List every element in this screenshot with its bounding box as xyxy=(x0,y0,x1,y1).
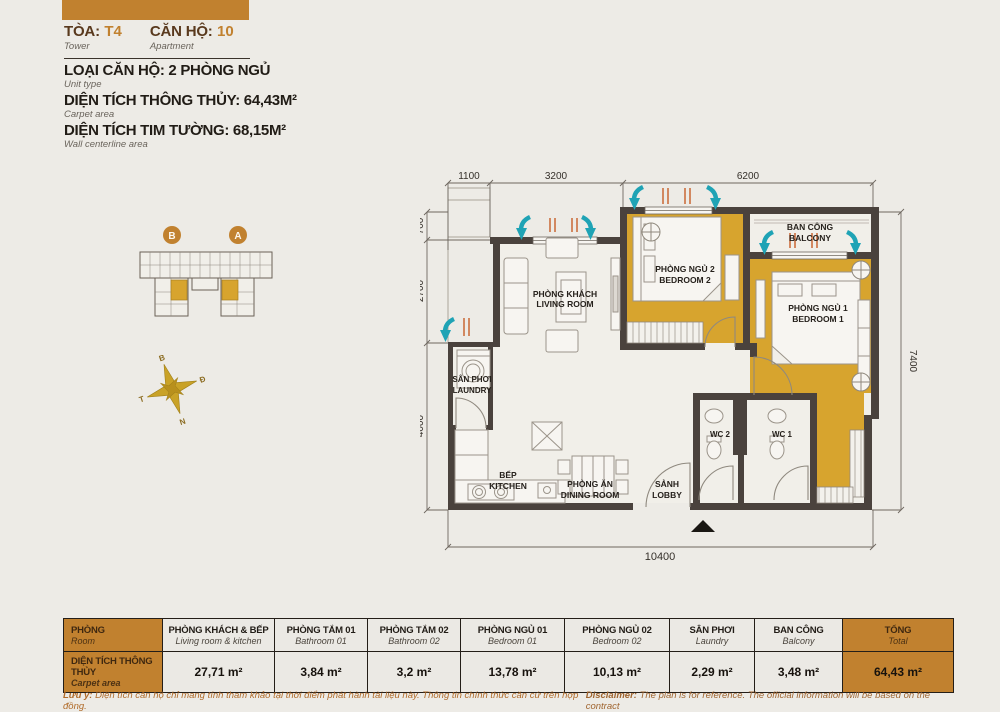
col-bedroom01: PHÒNG NGỦ 01Bedroom 01 xyxy=(461,619,565,652)
header: TÒA: T4 Tower CĂN HỘ: 10 Apartment LOẠI … xyxy=(64,23,424,153)
tower-key-plan: B A B Đ N T xyxy=(128,222,308,432)
dresser xyxy=(756,280,765,338)
tower-field: TÒA: T4 Tower xyxy=(64,23,122,55)
highlight-unit-a xyxy=(222,280,238,300)
dim-right-7400: 7400 xyxy=(907,350,918,373)
wc1-label: WC 1 xyxy=(772,430,793,439)
col-balcony: BAN CÔNGBalcony xyxy=(755,619,843,652)
compass-north-label: B xyxy=(158,353,166,363)
value-balcony: 3,48 m² xyxy=(755,652,843,693)
apartment-label: CĂN HỘ: xyxy=(150,23,213,40)
value-bathroom02: 3,2 m² xyxy=(368,652,461,693)
note-disclaimer: Disclaimer: The plan is for reference. T… xyxy=(586,690,953,712)
value-bedroom01: 13,78 m² xyxy=(461,652,565,693)
apartment-sublabel: Apartment xyxy=(150,41,234,52)
value-living-kitchen: 27,71 m² xyxy=(163,652,275,693)
wall-area-sublabel: Wall centerline area xyxy=(64,139,424,150)
dim-top-3200: 3200 xyxy=(545,171,568,182)
col-bedroom02: PHÒNG NGỦ 02Bedroom 02 xyxy=(565,619,670,652)
dim-left-4000: 4000 xyxy=(420,414,426,437)
value-laundry: 2,29 m² xyxy=(670,652,755,693)
wing-b-label: B xyxy=(168,231,175,242)
chair xyxy=(558,460,570,474)
laundry-label-en: LAUNDRY xyxy=(453,386,492,395)
wing-a-label: A xyxy=(234,231,241,242)
col-total: TỔNGTotal xyxy=(843,619,954,652)
compass-south-label: N xyxy=(179,417,187,427)
area-table: PHÒNG Room PHÒNG KHÁCH & BẾPLiving room … xyxy=(63,618,954,693)
note-vietnamese: Lưu ý: Diện tích căn hộ chỉ mang tính th… xyxy=(63,690,586,712)
col-laundry: SÂN PHƠILaundry xyxy=(670,619,755,652)
cabinet xyxy=(858,300,870,385)
compass-east-label: Đ xyxy=(198,374,206,384)
tower-value: T4 xyxy=(104,23,122,40)
unit-type-sublabel: Unit type xyxy=(64,79,424,90)
apartment-value: 10 xyxy=(217,23,234,40)
kitchen-label-en: KITCHEN xyxy=(489,481,527,491)
tower-sublabel: Tower xyxy=(64,41,122,52)
wall-area-line: DIỆN TÍCH TIM TƯỜNG: 68,15M² xyxy=(64,123,424,139)
chair xyxy=(616,460,628,474)
carpet-area-line: DIỆN TÍCH THÔNG THỦY: 64,43M² xyxy=(64,93,424,109)
col-living-kitchen: PHÒNG KHÁCH & BẾPLiving room & kitchen xyxy=(163,619,275,652)
bedroom2-label-en: BEDROOM 2 xyxy=(659,275,711,285)
unit-type-line: LOẠI CĂN HỘ: 2 PHÒNG NGỦ xyxy=(64,63,424,79)
living-room-label-en: LIVING ROOM xyxy=(536,299,593,309)
apartment-field: CĂN HỘ: 10 Apartment xyxy=(150,23,234,55)
table-value-row: DIỆN TÍCH THÔNG THỦY Carpet area 27,71 m… xyxy=(64,652,954,693)
dresser xyxy=(725,255,739,300)
sofa xyxy=(504,258,528,334)
carpet-area-sublabel: Carpet area xyxy=(64,109,424,120)
dim-top-6200: 6200 xyxy=(737,171,760,182)
dim-left-700: 700 xyxy=(420,217,426,234)
area-table-wrap: PHÒNG Room PHÒNG KHÁCH & BẾPLiving room … xyxy=(63,618,954,693)
lobby-label-vi: SẢNH xyxy=(655,478,679,489)
floor-plan: 1100 3200 6200 700 2700 4000 7400 10400 … xyxy=(420,160,920,600)
value-bathroom01: 3,84 m² xyxy=(275,652,368,693)
keyplan-core xyxy=(192,278,218,290)
highlight-unit-b xyxy=(171,280,187,300)
dim-top-1100: 1100 xyxy=(458,171,480,182)
living-room-label-vi: PHÒNG KHÁCH xyxy=(533,288,597,299)
kitchen-label-vi: BẾP xyxy=(499,470,517,480)
footer-notes: Lưu ý: Diện tích căn hộ chỉ mang tính th… xyxy=(63,690,953,712)
dining-label-vi: PHÒNG ĂN xyxy=(567,478,613,489)
row-label-carpet-area: DIỆN TÍCH THÔNG THỦY Carpet area xyxy=(64,652,163,693)
dim-bottom-10400: 10400 xyxy=(645,551,676,563)
col-room: PHÒNG Room xyxy=(64,619,163,652)
compass-rose-icon: B Đ N T xyxy=(128,343,217,432)
wc2-label: WC 2 xyxy=(710,430,731,439)
bedroom2-label-vi: PHÒNG NGỦ 2 xyxy=(655,263,715,274)
tower-label: TÒA: xyxy=(64,23,100,40)
lobby-label-en: LOBBY xyxy=(652,490,682,500)
col-bathroom02: PHÒNG TẮM 02Bathroom 02 xyxy=(368,619,461,652)
entrance-arrow-icon xyxy=(691,520,715,532)
header-accent-bar xyxy=(62,0,249,20)
dining-label-en: DINING ROOM xyxy=(561,490,620,500)
col-bathroom01: PHÒNG TẮM 01Bathroom 01 xyxy=(275,619,368,652)
table-header-row: PHÒNG Room PHÒNG KHÁCH & BẾPLiving room … xyxy=(64,619,954,652)
wc2-sink xyxy=(705,409,723,423)
value-total: 64,43 m² xyxy=(843,652,954,693)
bedroom1-label-vi: PHÒNG NGỦ 1 xyxy=(788,302,848,313)
sink xyxy=(538,483,556,498)
header-divider xyxy=(64,58,250,59)
dim-left-2700: 2700 xyxy=(420,279,426,302)
compass-west-label: T xyxy=(138,394,146,404)
wc1-sink xyxy=(768,409,786,423)
armchair xyxy=(546,330,578,352)
value-bedroom02: 10,13 m² xyxy=(565,652,670,693)
balcony-label-vi: BAN CÔNG xyxy=(787,221,834,232)
floorplan-page: { "header": { "toa_label": "TÒA:", "toa_… xyxy=(0,0,1000,707)
balcony-label-en: BALCONY xyxy=(789,233,831,243)
bedroom1-label-en: BEDROOM 1 xyxy=(792,314,844,324)
laundry-label-vi: SÂN PHƠI xyxy=(452,375,491,384)
armchair xyxy=(546,238,578,258)
